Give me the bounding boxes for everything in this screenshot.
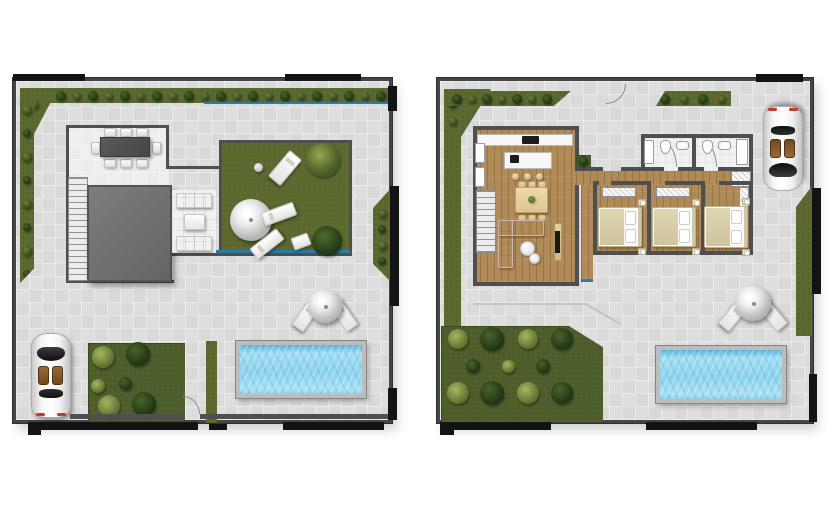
sun-lounger: [268, 150, 302, 186]
double-bed: [598, 207, 642, 247]
nightstand: [692, 248, 700, 255]
wall: [66, 125, 169, 128]
bush-icon: [502, 360, 515, 373]
shadow-bar: [285, 74, 361, 81]
garden-patch: [88, 343, 185, 421]
bush-icon: [361, 92, 369, 100]
dining-chair: [104, 159, 116, 168]
terrace-glass-door: [581, 279, 593, 282]
cooktop: [522, 136, 539, 144]
bush-icon: [449, 117, 457, 125]
parked-car: [763, 106, 803, 191]
bush-icon: [297, 92, 305, 100]
hedge-left-strip: [444, 89, 461, 326]
side-green-strip: [796, 186, 812, 336]
bush-icon: [344, 91, 354, 101]
bush-icon: [680, 95, 688, 103]
car-folded-top: [39, 389, 63, 398]
bush-icon: [378, 257, 386, 265]
car-seat: [52, 366, 63, 385]
bed-headboard: [638, 208, 641, 246]
hedge-left: [20, 101, 34, 283]
dining-chair: [152, 142, 161, 154]
wall: [575, 185, 579, 282]
bush-icon: [468, 95, 476, 103]
wall: [200, 414, 390, 419]
bush-icon: [23, 270, 31, 278]
bush-icon: [480, 327, 504, 351]
bush-icon: [120, 91, 130, 101]
bed-blanket: [706, 208, 730, 246]
bush-icon: [498, 95, 506, 103]
bed-blanket: [654, 209, 678, 245]
wall: [166, 125, 169, 169]
bed-headboard: [692, 208, 695, 246]
bush-icon: [233, 92, 241, 100]
double-bed: [652, 207, 696, 247]
bed-pillow: [679, 229, 690, 243]
bar-stool: [524, 173, 531, 180]
corridor-floor: [581, 185, 593, 279]
nightstand: [638, 199, 646, 206]
bush-icon: [551, 382, 573, 404]
plan-ground-floor: [437, 78, 813, 423]
bush-icon: [452, 94, 462, 104]
nightstand: [692, 199, 700, 206]
bathroom-cabinet: [644, 140, 654, 164]
bed-pillow: [625, 211, 636, 225]
sink: [676, 141, 689, 150]
bush-icon: [105, 92, 113, 100]
bush-icon: [518, 329, 538, 349]
shadow-bar: [209, 424, 227, 430]
bush-icon: [126, 342, 150, 366]
nightstand: [742, 198, 750, 205]
bed-pillow: [625, 229, 636, 243]
bush-icon: [378, 209, 387, 218]
bush-icon: [201, 92, 209, 100]
car-seat: [784, 139, 795, 158]
bush-icon: [378, 241, 387, 250]
shadow-bar: [390, 186, 399, 306]
bush-icon: [528, 95, 536, 103]
bush-icon: [280, 91, 290, 101]
stair-core-block: [87, 185, 172, 282]
bush-icon: [23, 129, 31, 137]
wall: [719, 181, 753, 185]
bush-icon: [22, 199, 32, 209]
nightstand: [638, 248, 646, 255]
wall: [593, 185, 597, 255]
car-seat: [38, 366, 49, 385]
shadow-bar: [283, 422, 384, 430]
bush-icon: [660, 94, 670, 104]
wall: [166, 166, 222, 169]
table-plant: [528, 196, 535, 203]
bush-icon: [22, 246, 32, 256]
terrace-edge: [473, 303, 588, 305]
entry-planter: [576, 155, 591, 167]
hedge-top: [20, 88, 390, 103]
side-table: [290, 232, 311, 250]
bar-stool: [536, 173, 543, 180]
wall: [473, 126, 579, 130]
plan-roof-terrace: [13, 78, 392, 423]
bush-icon: [448, 329, 468, 349]
bush-icon: [578, 156, 588, 166]
tree-icon: [312, 226, 342, 256]
bush-icon: [265, 92, 273, 100]
shadow-bar: [756, 74, 803, 82]
parasol: [308, 289, 342, 323]
kitchen-cabinet: [475, 167, 485, 187]
car-taillight: [789, 108, 798, 111]
swimming-pool: [236, 341, 366, 398]
wall: [611, 181, 651, 185]
pool-water: [240, 345, 362, 394]
car-taillight: [57, 413, 66, 416]
outdoor-sofa: [176, 193, 212, 208]
bush-icon: [480, 381, 504, 405]
wall: [70, 414, 183, 419]
bush-icon: [73, 92, 81, 100]
wardrobe: [656, 187, 690, 197]
tree-icon: [306, 143, 340, 177]
bed-blanket: [600, 209, 624, 245]
dining-chair: [91, 142, 100, 154]
wall: [692, 138, 696, 167]
outdoor-sofa: [176, 236, 212, 251]
coffee-table: [529, 253, 540, 264]
bush-icon: [542, 94, 552, 104]
bush-icon: [312, 91, 322, 101]
bush-icon: [698, 94, 708, 104]
bed-headboard: [744, 207, 747, 247]
dining-chair: [136, 128, 148, 137]
wall: [678, 167, 704, 171]
bed-pillow: [679, 211, 690, 225]
shadow-bar: [440, 422, 551, 430]
dining-chair: [120, 159, 132, 168]
car-folded-top: [771, 126, 795, 135]
hedge-top-left: [448, 91, 571, 106]
bush-icon: [152, 91, 162, 101]
garden: [441, 326, 603, 422]
shadow-bar: [440, 430, 454, 435]
shadow-bar: [809, 374, 817, 422]
car-taillight: [36, 413, 45, 416]
shadow-bar: [646, 422, 757, 430]
bush-icon: [137, 92, 145, 100]
bush-icon: [169, 92, 177, 100]
dining-chair: [136, 159, 148, 168]
sink: [718, 141, 731, 150]
wall: [576, 167, 603, 171]
gate-door-arc: [183, 396, 200, 414]
parked-car: [31, 333, 71, 418]
decor-ball: [254, 163, 263, 172]
bush-icon: [92, 346, 114, 368]
bush-icon: [184, 91, 194, 101]
wall: [749, 185, 753, 255]
bed-pillow: [731, 210, 742, 224]
shadow-bar: [13, 74, 85, 81]
bush-icon: [718, 95, 726, 103]
dining-table: [100, 137, 150, 157]
parasol: [735, 285, 771, 321]
bush-icon: [517, 382, 539, 404]
roof-stairs: [68, 177, 88, 281]
car-taillight: [768, 108, 777, 111]
bush-icon: [512, 94, 522, 104]
wall: [641, 134, 753, 138]
bush-icon: [56, 91, 66, 101]
bush-icon: [536, 359, 550, 373]
bush-icon: [22, 152, 32, 162]
roof-garden: [222, 143, 349, 250]
bush-icon: [482, 94, 492, 104]
dining-chair: [104, 128, 116, 137]
shadow-bar: [28, 422, 198, 430]
green-strip: [206, 341, 217, 423]
bush-icon: [376, 91, 386, 101]
nightstand: [742, 249, 750, 256]
bush-icon: [558, 95, 566, 103]
shadow-bar: [388, 388, 397, 420]
island-sink: [510, 155, 519, 163]
bush-icon: [329, 92, 337, 100]
swimming-pool: [656, 346, 786, 403]
glass-balustrade: [204, 102, 390, 104]
gate-door-arc: [606, 84, 626, 104]
kitchen-cabinet: [475, 143, 485, 163]
wall: [473, 282, 579, 286]
shadow-bar: [812, 188, 821, 294]
wall: [665, 181, 705, 185]
bush-icon: [23, 176, 31, 184]
wall: [593, 251, 753, 255]
bush-icon: [22, 105, 32, 115]
bar-stool: [512, 173, 519, 180]
staircase: [476, 190, 496, 253]
bed-pillow: [731, 230, 742, 244]
bush-icon: [216, 91, 226, 101]
bush-icon: [447, 382, 469, 404]
bush-icon: [248, 91, 258, 101]
wall: [349, 140, 352, 255]
shadow-bar: [28, 430, 41, 435]
hedge-top-right: [656, 91, 731, 106]
bush-icon: [551, 328, 573, 350]
pool-water: [660, 350, 782, 399]
bush-icon: [88, 91, 98, 101]
bush-icon: [23, 223, 31, 231]
bush-icon: [132, 392, 156, 416]
floor-plans-canvas: [0, 0, 840, 516]
car-body: [31, 333, 71, 418]
terrace-edge: [585, 303, 621, 325]
wall: [647, 185, 651, 255]
bush-icon: [466, 359, 480, 373]
car-seat: [770, 139, 781, 158]
tv-screen: [555, 231, 560, 253]
bathroom-cabinet: [736, 139, 748, 165]
bush-icon: [91, 379, 105, 393]
dining-chair: [120, 128, 132, 137]
bush-icon: [119, 377, 132, 390]
wardrobe: [602, 187, 636, 197]
living-sofa: [498, 220, 544, 236]
shadow-bar: [388, 86, 397, 111]
double-bed: [704, 206, 748, 248]
car-windshield: [769, 163, 797, 177]
car-body: [763, 106, 803, 191]
bush-icon: [378, 225, 386, 233]
coffee-table: [184, 214, 205, 230]
